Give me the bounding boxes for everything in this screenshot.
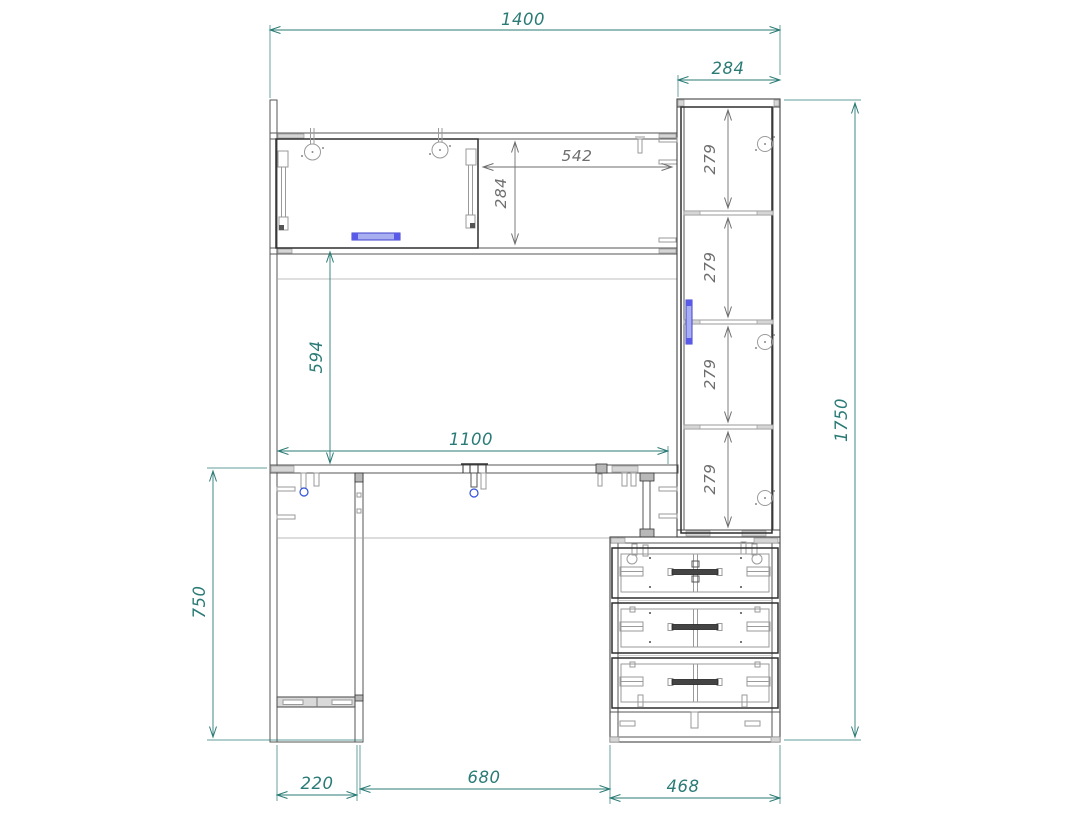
dim-overall-height: 1750 [832,398,851,442]
dimension-drawer-unit-width: 468 [610,745,780,804]
dimension-kneehole-width: 680 [360,745,610,794]
dim-kneehole-width: 680 [468,768,501,787]
dim-under-shelf-height: 594 [307,341,326,374]
dim-cabinet-section-3: 279 [701,358,719,389]
dimension-overall-height: 1750 [784,100,861,740]
drawer-3 [612,658,778,708]
gas-strut-icon [466,149,476,228]
dim-overall-width: 1400 [501,10,545,29]
drawer-unit [610,537,780,742]
cam-bolt-icon [300,488,308,496]
connector-bracket-icon [461,464,488,497]
flap-door-handle [352,233,400,240]
furniture-drawing-canvas: 1400 284 594 1100 750 220 680 468 [0,0,1067,830]
dim-shelf-opening-width: 542 [561,147,592,165]
drawing-page: 1400 284 594 1100 750 220 680 468 [0,0,1067,830]
dimension-under-shelf-height: 594 [307,252,330,463]
tall-cabinet [659,99,780,537]
desktop [270,465,678,473]
cabinet-shelf [684,211,773,215]
dim-desk-opening-width: 1100 [449,430,493,449]
drawer-handle [668,679,722,686]
cabinet-shelf [684,320,773,324]
dimension-top-cabinet-width: 284 [678,59,780,97]
drawer-2 [612,603,778,653]
flap-door [276,128,478,248]
dimension-overall-width: 1400 [270,10,780,98]
inner-leg-panel [355,473,363,742]
support-strut [640,473,654,537]
dimension-shelf-opening-width: 542 [483,147,672,167]
leg-cross-panel [277,697,355,707]
dim-top-cabinet-width: 284 [712,59,745,78]
gas-strut-icon [278,151,288,230]
dim-cabinet-section-4: 279 [701,463,719,494]
dimension-cabinet-sections: 279 279 279 279 [701,110,728,527]
dimension-shelf-opening-height: 284 [492,142,515,244]
dimension-desk-opening-width: 1100 [278,430,668,464]
corner-block-icon [596,464,607,486]
under-desk-fittings [300,464,636,497]
drawer-handle [668,624,722,631]
left-side-panel [270,100,295,742]
dim-drawer-unit-width: 468 [667,777,700,796]
dim-desk-height: 750 [190,586,209,619]
drawer-handle [668,569,722,576]
cabinet-shelf [684,425,773,429]
plinth [610,712,780,742]
cam-bolt-icon [470,489,478,497]
dim-left-leg-depth: 220 [301,774,334,793]
dimension-left-leg-depth: 220 [277,745,357,801]
dim-shelf-opening-height: 284 [492,177,510,208]
dim-cabinet-section-2: 279 [701,251,719,282]
dim-cabinet-section-1: 279 [701,143,719,174]
cabinet-door-handle [686,300,692,344]
